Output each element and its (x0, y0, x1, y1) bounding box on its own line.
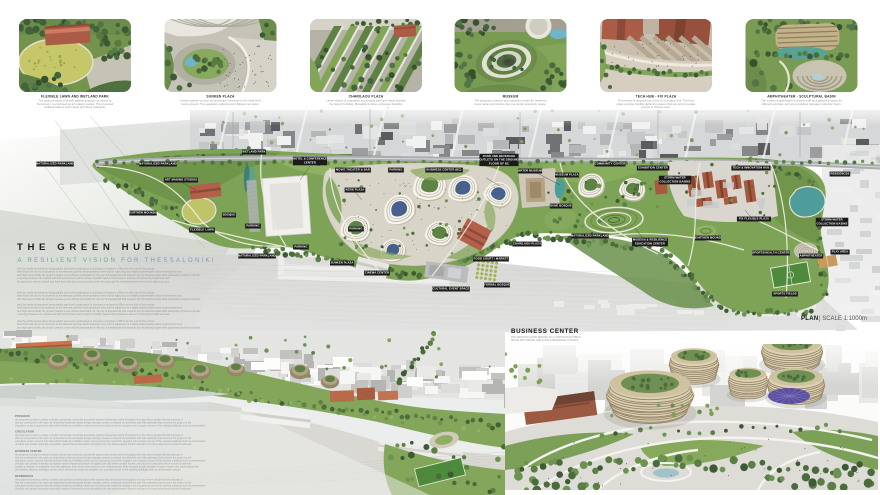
svg-text:MUSEUM & RESILIENCE: MUSEUM & RESILIENCE (633, 238, 667, 242)
svg-text:fuses nature and culture into: fuses nature and culture into one social… (475, 102, 547, 106)
svg-text:PLAN: PLAN (801, 316, 819, 322)
svg-text:BUSINESS CENTER (BC): BUSINESS CENTER (BC) (427, 168, 462, 172)
svg-text:NATURALIZED PARKLAND: NATURALIZED PARKLAND (36, 162, 74, 166)
svg-text:RESIDENCES: RESIDENCES (831, 172, 850, 176)
svg-text:EDUCATION CENTER: EDUCATION CENTER (635, 241, 665, 245)
svg-text:SUNKEN PLAZA: SUNKEN PLAZA (331, 261, 354, 265)
svg-text:AMPHITHEATER: AMPHITHEATER (800, 254, 823, 258)
svg-text:below ground. The vegetation c: below ground. The vegetation collects an… (182, 102, 260, 106)
svg-text:PARKING: PARKING (294, 245, 307, 249)
svg-text:WATER MUSEUM: WATER MUSEUM (518, 169, 543, 173)
svg-text:NATURALIZED PARKLAND: NATURALIZED PARKLAND (139, 162, 177, 166)
svg-text:THE GREEN HUB: THE GREEN HUB (17, 242, 156, 253)
svg-text:education center a sports hub: education center a sports hub with athle… (15, 424, 206, 427)
svg-text:STORM WATER: STORM WATER (664, 176, 686, 180)
svg-text:COLLECTION BASINS: COLLECTION BASINS (817, 221, 848, 225)
svg-text:FLEXIBLE LAWN: FLEXIBLE LAWN (190, 228, 214, 232)
svg-text:SPORTS/HEALTH CENTER: SPORTS/HEALTH CENTER (752, 251, 789, 255)
svg-text:STORM WATER: STORM WATER (821, 218, 843, 222)
svg-text:different activities, and as a: different activities, and as a sculptura… (762, 102, 842, 106)
svg-text:BOSQUE: BOSQUE (223, 213, 236, 217)
svg-text:CENTER: CENTER (304, 160, 316, 164)
svg-text:A RESILIENT VISION FOR THESSAL: A RESILIENT VISION FOR THESSALONIKI (18, 258, 216, 264)
svg-text:OUTLETS ON THE GROUND: OUTLETS ON THE GROUND (479, 158, 518, 162)
svg-text:NATURALIZED PARKLAND: NATURALIZED PARKLAND (238, 254, 276, 258)
svg-text:KERB PLAZA: KERB PLAZA (346, 188, 365, 192)
svg-text:PLAY AREA: PLAY AREA (832, 250, 848, 254)
svg-text:is exposed to severe coastal a: is exposed to severe coastal and flash f… (17, 279, 170, 283)
svg-text:groups of various sizes.: groups of various sizes. (641, 105, 671, 109)
svg-text:PARKING: PARKING (246, 224, 259, 228)
svg-text:wetland collects storm water a: wetland collects storm water and filters… (44, 105, 106, 109)
svg-text:DUNE BOSQUE: DUNE BOSQUE (550, 204, 572, 208)
svg-text:MUSEUM PLAZA: MUSEUM PLAZA (555, 173, 578, 177)
svg-text:FOOD AND BEVERAGE: FOOD AND BEVERAGE (483, 154, 516, 158)
svg-text:ART MAKING STUDIOS: ART MAKING STUDIOS (165, 178, 198, 182)
svg-text:of public and private universi: of public and private university accessi… (15, 487, 192, 490)
svg-text:CINEMA CENTER: CINEMA CENTER (365, 271, 389, 275)
svg-text:HOTEL & CONFERENCE: HOTEL & CONFERENCE (293, 157, 327, 161)
svg-text:WETLAND PARK: WETLAND PARK (242, 150, 265, 154)
svg-text:PARKING: PARKING (349, 227, 362, 231)
svg-text:a synergy between the natural: a synergy between the natural and built … (17, 312, 170, 316)
svg-text:EARTHEN MOUND: EARTHEN MOUND (695, 236, 721, 240)
svg-text:SPORTS FIELDS: SPORTS FIELDS (773, 292, 796, 296)
svg-text:FOOD COURT / MARKET: FOOD COURT / MARKET (474, 257, 509, 261)
svg-text:the historic building. Moveabl: the historic building. Moveable furnitur… (329, 102, 403, 106)
svg-text:PARKING: PARKING (389, 168, 402, 172)
svg-text:and high speed traffic the pro: and high speed traffic the project creat… (17, 297, 201, 301)
svg-text:of public and private universi: of public and private university accessi… (15, 443, 192, 446)
svg-text:NATURALIZED PARKLAND: NATURALIZED PARKLAND (571, 234, 609, 238)
svg-text:COLLECTION BASINS: COLLECTION BASINS (660, 179, 691, 183)
svg-text:| SCALE 1:1000m: | SCALE 1:1000m (819, 316, 867, 322)
svg-text:FORMAL BOSQUE: FORMAL BOSQUE (484, 283, 510, 287)
svg-text:EARTHEN MOUNDS: EARTHEN MOUNDS (129, 211, 157, 215)
svg-text:SPACE WITH RETAIL AND FOOD & B: SPACE WITH RETAIL AND FOOD & BEVERAGE OU… (511, 339, 579, 342)
svg-text:BUSINESS CENTER: BUSINESS CENTER (511, 328, 579, 335)
svg-text:CULTURAL EVENT SPACE: CULTURAL EVENT SPACE (433, 287, 470, 291)
svg-text:MOVIE THEATER & BAR: MOVIE THEATER & BAR (336, 168, 370, 172)
svg-text:EXHIBITION CENTER: EXHIBITION CENTER (638, 166, 668, 170)
svg-text:FLOOR OF BC: FLOOR OF BC (489, 161, 509, 165)
svg-text:TECH & INNOVATION HUB: TECH & INNOVATION HUB (733, 166, 770, 170)
svg-text:with athletic fields an exhibi: with athletic fields an exhibition cente… (15, 468, 181, 471)
svg-text:FIX FLEXIBLE PLAZA: FIX FLEXIBLE PLAZA (739, 217, 769, 221)
svg-text:COMMUNITY CENTER: COMMUNITY CENTER (595, 162, 626, 166)
svg-text:CHARILAOU PLAZA: CHARILAOU PLAZA (513, 242, 541, 246)
